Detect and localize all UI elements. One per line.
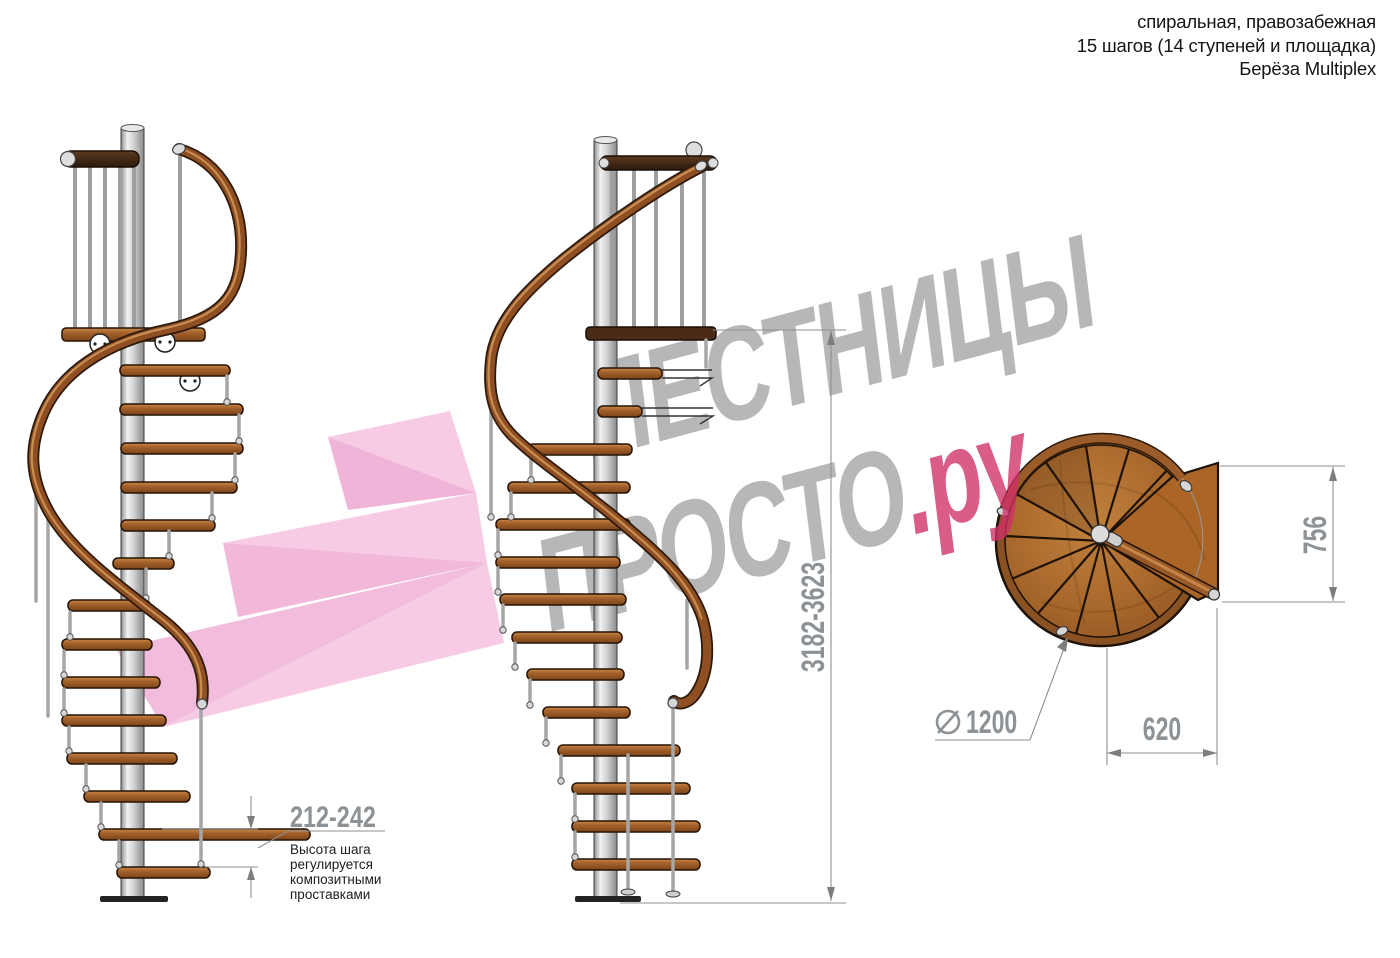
title-line-material: Берёза Multiplex xyxy=(1077,57,1376,81)
diameter-icon xyxy=(937,711,959,733)
title-line-steps: 15 шагов (14 ступеней и площадка) xyxy=(1077,34,1376,58)
note-line: композитными xyxy=(290,872,381,887)
diameter-callout: 1200 xyxy=(937,704,1017,740)
drawing-canvas: ЛЕСТНИЦЫ ПРОСТО.ру xyxy=(0,0,1400,958)
diameter-dim-label: 1200 xyxy=(966,704,1017,740)
note-line: проставками xyxy=(290,887,370,902)
title-line-type: спиральная, правозабежная xyxy=(1077,10,1376,34)
landing-depth-dim-label: 756 xyxy=(1297,516,1333,554)
landing-width-dim-label: 620 xyxy=(1143,711,1181,747)
step-height-note: Высота шага регулируется композитными пр… xyxy=(290,842,381,902)
dimensions-layer: 3182-3623 756 620 1200 212-242 Высота ша… xyxy=(0,0,1400,958)
title-block: спиральная, правозабежная 15 шагов (14 с… xyxy=(1077,10,1376,81)
total-height-dim-label: 3182-3623 xyxy=(795,562,831,672)
dimension-arrows xyxy=(247,331,1337,901)
note-line: регулируется xyxy=(290,857,373,872)
step-height-dim-label: 212-242 xyxy=(290,800,376,833)
note-line: Высота шага xyxy=(290,842,371,857)
